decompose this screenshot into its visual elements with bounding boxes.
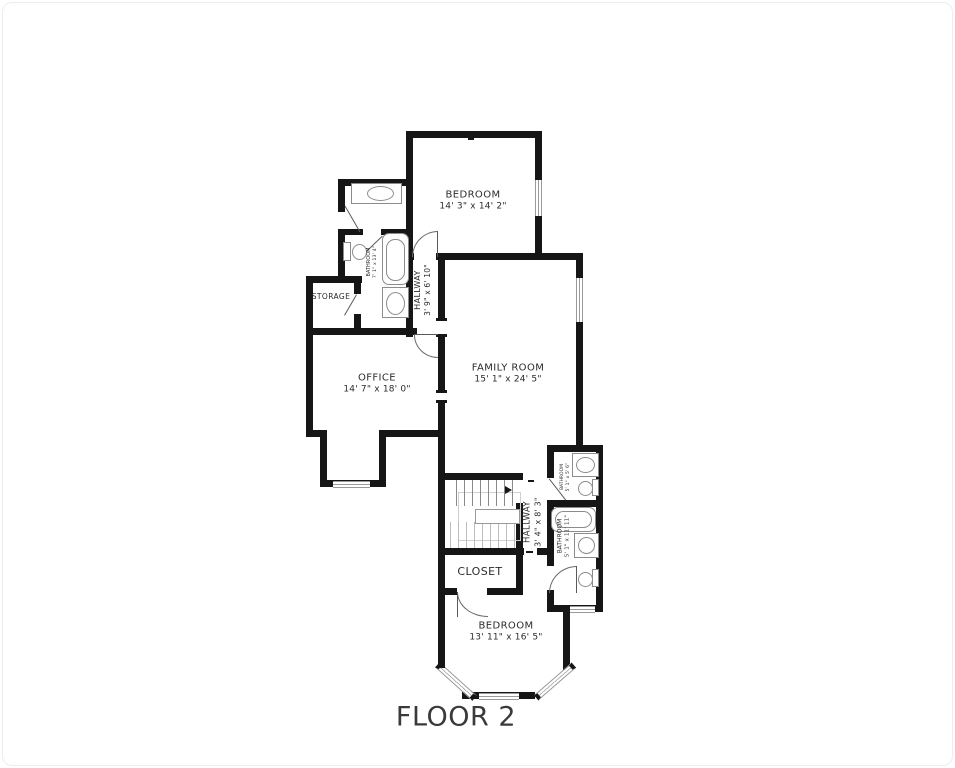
room-name: BEDROOM	[439, 189, 506, 202]
room-label-bedroom-bottom: BEDROOM 13' 11" x 16' 5"	[469, 620, 542, 645]
room-label-bathroom-small: BATHROOM 5' 1" x 5' 6"	[560, 462, 572, 491]
wall	[537, 548, 548, 555]
opening-marker	[528, 480, 534, 482]
opening-marker	[436, 400, 447, 403]
sink-icon	[576, 457, 595, 473]
wall	[563, 612, 570, 670]
wall	[516, 548, 523, 595]
wall	[338, 179, 345, 212]
room-name: BATHROOM	[366, 246, 373, 278]
wall	[576, 260, 583, 280]
wall	[547, 590, 554, 612]
room-name: FAMILY ROOM	[472, 362, 545, 375]
floor-plan: BEDROOM 14' 3" x 14' 2" HALLWAY 3' 9" x …	[0, 0, 955, 768]
room-label-office: OFFICE 14' 7" x 18' 0"	[343, 372, 410, 397]
wall	[320, 430, 327, 487]
room-dims: 13' 11" x 16' 5"	[469, 633, 542, 645]
room-dims: 14' 3" x 14' 2"	[439, 202, 506, 214]
floor-title: FLOOR 2	[396, 702, 516, 733]
room-dims: 5' 1" x 5' 6"	[566, 462, 572, 491]
wall	[406, 131, 542, 138]
toilet-tank-icon	[592, 479, 599, 496]
room-name: BATHROOM	[557, 515, 565, 557]
wall	[436, 253, 583, 260]
toilet-icon	[578, 572, 593, 587]
window	[535, 180, 542, 218]
opening-marker	[436, 318, 447, 321]
wall	[535, 131, 542, 182]
stairs-treads-lower	[450, 522, 520, 548]
wall	[547, 445, 554, 478]
wall	[438, 548, 524, 555]
room-name: BATHROOM	[560, 462, 566, 491]
room-name: OFFICE	[343, 372, 410, 385]
bathtub-basin-icon	[386, 239, 405, 281]
room-label-family-room: FAMILY ROOM 15' 1" x 24' 5"	[472, 362, 545, 387]
toilet-tank-icon	[343, 242, 351, 261]
window	[570, 606, 595, 613]
wall	[306, 328, 417, 335]
door-leaf	[576, 566, 577, 593]
door-leaf	[414, 334, 438, 335]
room-dims: 5' 1" x 11' 11"	[564, 515, 571, 557]
wall	[438, 337, 445, 393]
wall	[438, 473, 523, 480]
room-name: HALLWAY	[413, 264, 423, 316]
stairs-landing-rail	[475, 509, 520, 524]
window	[479, 693, 519, 700]
room-name: STORAGE	[312, 292, 351, 302]
window	[333, 481, 370, 488]
room-label-bedroom-top: BEDROOM 14' 3" x 14' 2"	[439, 189, 506, 214]
room-name: BEDROOM	[469, 620, 542, 633]
room-label-hallway-bottom: HALLWAY 3' 4" x 8' 3"	[522, 497, 543, 547]
wall	[547, 445, 603, 452]
room-label-bathroom-bottom: BATHROOM 5' 1" x 11' 11"	[557, 515, 572, 557]
room-dims: 7' 1" x 13' 4"	[372, 246, 378, 278]
wall	[576, 322, 583, 448]
window	[576, 278, 583, 324]
opening-marker	[436, 390, 447, 393]
sink-icon	[367, 186, 394, 201]
room-name: HALLWAY	[522, 497, 533, 547]
sink-icon	[386, 292, 405, 315]
room-label-storage: STORAGE	[312, 292, 351, 302]
opening-marker	[526, 551, 533, 553]
room-dims: 14' 7" x 18' 0"	[343, 385, 410, 397]
room-label-hallway-top: HALLWAY 3' 9" x 6' 10"	[413, 264, 433, 316]
sink-icon	[578, 537, 595, 554]
room-name: CLOSET	[457, 565, 502, 579]
wall	[379, 430, 386, 487]
wall	[354, 276, 361, 294]
door-leaf	[457, 592, 458, 617]
room-dims: 15' 1" x 24' 5"	[472, 375, 545, 387]
wall	[379, 430, 444, 437]
toilet-icon	[578, 481, 593, 496]
door-leaf	[437, 231, 438, 257]
toilet-icon	[352, 244, 367, 260]
wall	[438, 402, 445, 668]
room-label-bathroom-top: BATHROOM 7' 1" x 13' 4"	[366, 246, 378, 278]
wall	[547, 500, 603, 507]
stairs-direction-arrow-icon	[505, 486, 512, 494]
wall	[438, 258, 445, 320]
toilet-tank-icon	[592, 569, 599, 587]
opening-marker	[468, 137, 474, 140]
room-dims: 3' 4" x 8' 3"	[533, 497, 543, 547]
room-label-closet: CLOSET	[457, 565, 502, 579]
room-dims: 3' 9" x 6' 10"	[423, 264, 433, 316]
